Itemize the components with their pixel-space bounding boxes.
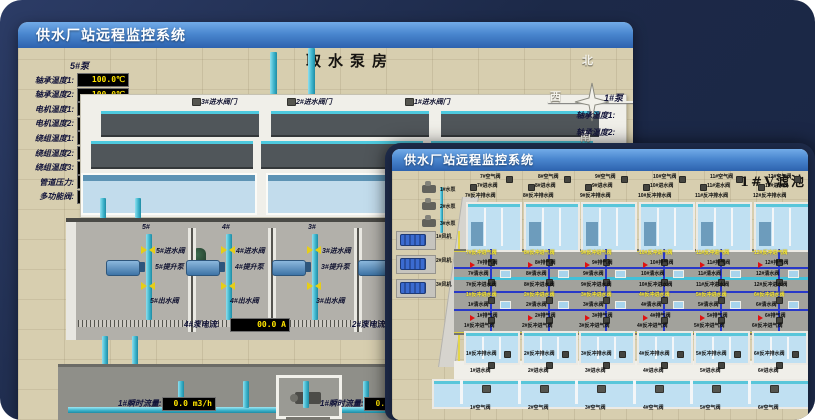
lift-pump-label: 3#提升泵	[321, 264, 350, 271]
backwash-drain-valve-label: 6#反冲排水阀	[754, 352, 785, 357]
cell-lane	[599, 208, 601, 246]
filter-cell	[694, 331, 750, 365]
backwash-drain-valve-label: 1#反冲排水阀	[466, 352, 497, 357]
filter-cell	[639, 202, 695, 252]
gallery-valve[interactable]	[546, 297, 553, 304]
cell-lane	[559, 208, 561, 246]
panel-label: 多功能阀:	[26, 191, 74, 202]
lift-pump[interactable]	[272, 260, 306, 276]
air-valve-label: 9#空气阀	[595, 175, 616, 180]
panel-label: 绕组温度3:	[26, 162, 74, 173]
clean-water-basin	[558, 301, 569, 309]
water-pump-label: 2#水泵	[440, 205, 456, 210]
blower[interactable]	[400, 234, 426, 246]
water-pump[interactable]	[422, 202, 436, 210]
bay-inlet-valve-label: 3#进水阀	[322, 248, 351, 255]
clean-water-valve-label: 6#清水阀	[756, 303, 777, 308]
filter-cell	[637, 331, 693, 365]
panel-label: 电机温度2:	[26, 118, 74, 129]
clean-water-valve-label: 5#清水阀	[698, 303, 719, 308]
connector-pipe	[102, 336, 108, 366]
filter-cell	[696, 202, 752, 252]
air-valve[interactable]	[597, 385, 606, 393]
air-valve-label: 12#空气阀	[768, 175, 791, 180]
gallery-valve[interactable]	[488, 297, 495, 304]
backwash-drain-valve[interactable]	[677, 351, 684, 358]
gallery-valve[interactable]	[603, 297, 610, 304]
backwash-air-valve-label: 4#反冲进气阀	[637, 324, 668, 329]
backwash-drain-valve-label: 12#反冲排水阀	[753, 194, 786, 199]
lift-pump[interactable]	[186, 260, 220, 276]
backwash-drain-valve-label: 4#反冲排水阀	[639, 352, 670, 357]
bay-divider	[268, 228, 276, 332]
backwash-drain-valve-label: 5#反冲排水阀	[696, 352, 727, 357]
cell-lane	[672, 337, 674, 359]
clean-water-basin	[615, 270, 626, 278]
bay-divider	[354, 228, 362, 332]
inlet-valve-label: 11#进水阀	[707, 184, 730, 189]
backwash-drain-valve[interactable]	[504, 351, 511, 358]
inlet-valve-label: 6#进水阀	[758, 369, 779, 374]
cell-streak	[586, 222, 598, 246]
bay-inlet-valve[interactable]	[221, 246, 235, 255]
channel-divider	[518, 380, 521, 404]
backwash-air-valve-label: 2#反冲进气阀	[522, 324, 553, 329]
backwash-water-valve-label: 2#反冲进水阀	[524, 293, 555, 298]
flow-meter-label: 1#瞬时流量:	[320, 400, 364, 408]
blower-label: 3#风机	[436, 283, 452, 288]
air-valve[interactable]	[679, 176, 686, 183]
air-valve[interactable]	[770, 385, 779, 393]
panel-row: 轴承温度1:100.0℃	[26, 74, 134, 86]
inlet-valve[interactable]	[700, 184, 707, 191]
filter-pool-scene: 1#V滤池 1#水泵2#水泵3#水泵1#风机2#风机3#风机7#空气阀7#进水阀…	[392, 171, 808, 420]
gallery-valve[interactable]	[718, 297, 725, 304]
backwash-water-valve-label: 3#反冲进水阀	[581, 293, 612, 298]
channel-divider	[460, 380, 463, 404]
bay-inlet-valve[interactable]	[307, 246, 321, 255]
hall-wall	[66, 222, 76, 340]
cell-streak	[471, 222, 483, 246]
channel-divider	[633, 380, 636, 404]
exhaust-valve-label: 3#排气阀	[592, 314, 613, 319]
backwash-air-valve-label: 10#反冲进气阀	[639, 251, 672, 256]
filter-cell	[466, 202, 522, 252]
clean-water-basin	[730, 270, 741, 278]
clean-water-valve-label: 1#清水阀	[468, 303, 489, 308]
lift-pump-label: 5#提升泵	[155, 264, 184, 271]
air-valve[interactable]	[621, 176, 628, 183]
inlet-valve[interactable]	[758, 184, 765, 191]
inlet-valve-label: 7#进水阀	[477, 184, 498, 189]
panel-value: 100.0℃	[77, 73, 129, 87]
panel-label: 绕组温度2:	[26, 148, 74, 159]
cell-streak	[529, 222, 541, 246]
filter-cell	[524, 202, 580, 252]
cell-lane	[731, 208, 733, 246]
backwash-air-valve-label: 5#反冲进气阀	[694, 324, 725, 329]
pump-current-value: 00.0 A	[230, 318, 290, 332]
air-valve[interactable]	[712, 385, 721, 393]
scada-canvas: 供水厂站远程监控系统 取水泵房 5#泵 轴承温度1:100.0℃轴承温度2:10…	[0, 0, 815, 420]
front-window-titlebar[interactable]: 供水厂站远程监控系统	[392, 149, 808, 171]
pump-panel-header: 5#泵	[70, 62, 89, 71]
clean-water-valve-label: 10#清水阀	[641, 272, 664, 277]
gallery-pipe-blue	[454, 267, 808, 269]
booster-station[interactable]	[276, 375, 342, 419]
gallery-valve[interactable]	[661, 297, 668, 304]
inlet-valve[interactable]	[470, 184, 477, 191]
air-valve[interactable]	[540, 385, 549, 393]
air-valve[interactable]	[794, 176, 801, 183]
intake-channel	[91, 141, 253, 169]
backwash-water-valve-label: 7#反冲进水阀	[466, 283, 497, 288]
backwash-water-valve-label: 9#反冲进水阀	[581, 283, 612, 288]
filter-cell	[464, 331, 520, 365]
cell-lane	[714, 208, 716, 246]
inlet-valve-label: 5#进水阀	[700, 369, 721, 374]
cell-lane	[616, 208, 618, 246]
inlet-valve-label: 3#进水阀	[585, 369, 606, 374]
compass-north-label: 北	[582, 56, 593, 67]
flow-meter-label: 1#瞬时流量:	[118, 400, 162, 408]
backwash-water-valve-label: 12#反冲进水阀	[754, 283, 787, 288]
air-valve[interactable]	[482, 385, 491, 393]
front-window: 供水厂站远程监控系统 1#V滤池 1#水泵2#水泵3#水泵1#风机2#风机3#风…	[392, 149, 808, 420]
inlet-valve-label: 2#进水阀	[528, 369, 549, 374]
inlet-valve-label: 9#进水阀	[592, 184, 613, 189]
bay-outlet-valve-label: 3#出水阀	[316, 298, 345, 305]
cell-lane	[484, 208, 486, 246]
clean-water-valve-label: 4#清水阀	[641, 303, 662, 308]
gallery-stub-pipe	[243, 381, 249, 408]
exhaust-valve-label: 5#排气阀	[707, 314, 728, 319]
clean-water-valve-label: 11#清水阀	[698, 272, 721, 277]
clean-water-valve-label: 12#清水阀	[756, 272, 779, 277]
inlet-valve[interactable]	[585, 184, 592, 191]
cell-lane	[772, 208, 774, 246]
backwash-drain-valve-label: 10#反冲排水阀	[638, 194, 671, 199]
intake-channel	[271, 111, 429, 137]
bay-number: 4#	[222, 224, 230, 231]
intake-channel	[101, 111, 259, 137]
bay-outlet-valve-label: 4#出水阀	[230, 298, 259, 305]
scene-title: 取水泵房	[306, 50, 394, 71]
flow-meter-value: 0.0 m3/h	[162, 397, 216, 411]
exhaust-valve-label: 7#排气阀	[477, 261, 498, 266]
backwash-water-valve-label: 10#反冲进水阀	[639, 283, 672, 288]
settling-channel	[81, 173, 257, 215]
back-window-title: 供水厂站远程监控系统	[36, 27, 186, 43]
backwash-drain-valve-label: 11#反冲排水阀	[695, 194, 728, 199]
backwash-drain-valve-label: 3#反冲排水阀	[581, 352, 612, 357]
backwash-air-valve-label: 12#反冲进气阀	[754, 251, 787, 256]
air-valve-label: 7#空气阀	[480, 175, 501, 180]
bay-inlet-valve[interactable]	[141, 246, 155, 255]
water-pump-label: 3#水泵	[440, 222, 456, 227]
compass-west-label: 西	[550, 92, 561, 103]
backwash-air-valve-label: 7#反冲进气阀	[466, 251, 497, 256]
backwash-water-valve-label: 8#反冲进水阀	[524, 283, 555, 288]
air-valve-label: 6#空气阀	[758, 406, 779, 411]
connector-pipe	[132, 336, 138, 366]
air-valve-label: 10#空气阀	[653, 175, 676, 180]
air-valve[interactable]	[736, 176, 743, 183]
inlet-valve[interactable]	[643, 184, 650, 191]
backwash-drain-valve[interactable]	[619, 351, 626, 358]
exhaust-valve-label: 1#排气阀	[477, 314, 498, 319]
clean-water-basin	[615, 301, 626, 309]
filter-cell	[522, 331, 578, 365]
filter-cell	[752, 331, 808, 365]
pump-current-label: 4#泵电流:	[184, 321, 220, 329]
cell-lane	[499, 337, 501, 359]
bay-number: 5#	[142, 224, 150, 231]
clean-water-valve-label: 2#清水阀	[526, 303, 547, 308]
exhaust-valve-label: 4#排气阀	[650, 314, 671, 319]
clean-water-basin	[673, 301, 684, 309]
filter-cell	[754, 202, 808, 252]
right-panel-label: 轴承温度1:	[576, 112, 615, 120]
bay-inlet-valve-label: 5#进水阀	[156, 248, 185, 255]
air-valve-label: 11#空气阀	[710, 175, 733, 180]
water-pump[interactable]	[422, 219, 436, 227]
front-window-title: 供水厂站远程监控系统	[404, 153, 534, 167]
riser-pipe	[308, 48, 315, 100]
filter-cell	[581, 202, 637, 252]
exhaust-valve-label: 6#排气阀	[765, 314, 786, 319]
bay-outlet-valve[interactable]	[221, 282, 235, 291]
backwash-water-valve-label: 4#反冲进水阀	[639, 293, 670, 298]
clean-water-basin	[500, 301, 511, 309]
backwash-water-valve-label: 6#反冲进水阀	[754, 293, 785, 298]
cell-lane	[729, 337, 731, 359]
backwash-drain-valve-label: 2#反冲排水阀	[524, 352, 555, 357]
clean-water-valve-label: 3#清水阀	[583, 303, 604, 308]
cell-lane	[787, 337, 789, 359]
panel-label: 电机温度1:	[26, 104, 74, 115]
inlet-valve[interactable]	[528, 184, 535, 191]
gallery-pipe-blue	[454, 309, 808, 311]
backwash-air-valve-label: 3#反冲进气阀	[579, 324, 610, 329]
water-pump[interactable]	[422, 185, 436, 193]
air-valve-label: 3#空气阀	[585, 406, 606, 411]
air-valve[interactable]	[564, 176, 571, 183]
backwash-air-valve-label: 6#反冲进气阀	[752, 324, 783, 329]
clean-water-basin	[788, 301, 799, 309]
backwash-drain-valve-label: 8#反冲排水阀	[523, 194, 554, 199]
lift-pump-label: 4#提升泵	[235, 264, 264, 271]
cell-lane	[557, 337, 559, 359]
exhaust-valve-label: 11#排气阀	[707, 261, 730, 266]
panel-label: 管道压力:	[26, 177, 74, 188]
air-valve-label: 5#空气阀	[700, 406, 721, 411]
backwash-drain-valve[interactable]	[562, 351, 569, 358]
cell-lane	[501, 208, 503, 246]
blower[interactable]	[400, 258, 426, 270]
air-valve-label: 1#空气阀	[470, 406, 491, 411]
riser-pipe	[270, 52, 277, 100]
clean-water-basin	[558, 270, 569, 278]
inlet-valve-label: 1#进水阀	[470, 369, 491, 374]
bay-outlet-valve[interactable]	[307, 282, 321, 291]
clean-water-basin	[730, 301, 741, 309]
backwash-water-valve-label: 11#反冲进水阀	[696, 283, 729, 288]
clean-water-valve-label: 7#清水阀	[468, 272, 489, 277]
backwash-water-valve-label: 1#反冲进水阀	[466, 293, 497, 298]
cell-lane	[542, 208, 544, 246]
backwash-air-valve-label: 1#反冲进气阀	[464, 324, 495, 329]
panel-label: 绕组温度1:	[26, 133, 74, 144]
channel-divider	[575, 380, 578, 404]
cell-streak	[644, 222, 656, 246]
right-panel-header: 1#泵	[604, 94, 623, 103]
cell-lane	[674, 208, 676, 246]
pump-current-label: 2#泵电流:	[352, 321, 388, 329]
blower-label: 1#风机	[436, 235, 452, 240]
clean-water-valve-label: 8#清水阀	[526, 272, 547, 277]
air-valve-label: 2#空气阀	[528, 406, 549, 411]
inlet-valve-label: 8#进水阀	[535, 184, 556, 189]
bay-number: 3#	[308, 224, 316, 231]
exhaust-valve-label: 10#排气阀	[650, 261, 673, 266]
inlet-valve-label: 10#进水阀	[650, 184, 673, 189]
cell-streak	[701, 222, 713, 246]
cell-lane	[614, 337, 616, 359]
panel-label: 轴承温度2:	[26, 89, 74, 100]
air-valve-label: 8#空气阀	[538, 175, 559, 180]
channel-divider	[690, 380, 693, 404]
cell-lane	[657, 208, 659, 246]
bay-inlet-valve-label: 4#进水阀	[236, 248, 265, 255]
backwash-air-valve-label: 8#反冲进气阀	[524, 251, 555, 256]
blower[interactable]	[400, 282, 426, 294]
channel-divider	[748, 380, 751, 404]
exhaust-valve-label: 2#排气阀	[535, 314, 556, 319]
panel-label: 轴承温度1:	[26, 75, 74, 86]
backwash-drain-valve-label: 7#反冲排水阀	[465, 194, 496, 199]
lift-pump[interactable]	[106, 260, 140, 276]
cell-lane	[789, 208, 791, 246]
water-pump-label: 1#水泵	[440, 188, 456, 193]
back-window-titlebar[interactable]: 供水厂站远程监控系统	[18, 22, 633, 48]
backwash-water-valve-label: 5#反冲进水阀	[696, 293, 727, 298]
inlet-valve-label: 12#进水阀	[765, 184, 788, 189]
blower-label: 2#风机	[436, 259, 452, 264]
clean-water-basin	[500, 270, 511, 278]
exhaust-valve-label: 12#排气阀	[765, 261, 788, 266]
bay-outlet-valve[interactable]	[141, 282, 155, 291]
gallery-stub-pipe	[303, 381, 309, 408]
backwash-air-valve-label: 11#反冲进气阀	[696, 251, 729, 256]
bay-divider	[188, 228, 196, 332]
front-window-frame: 供水厂站远程监控系统 1#V滤池 1#水泵2#水泵3#水泵1#风机2#风机3#风…	[385, 143, 815, 420]
filter-cell	[579, 331, 635, 365]
backwash-air-valve-label: 9#反冲进气阀	[581, 251, 612, 256]
right-panel-label: 轴承温度2:	[576, 129, 615, 137]
cell-streak	[759, 222, 771, 246]
gallery-valve[interactable]	[776, 297, 783, 304]
backwash-drain-valve-label: 9#反冲排水阀	[580, 194, 611, 199]
air-valve[interactable]	[506, 176, 513, 183]
air-valve-label: 4#空气阀	[643, 406, 664, 411]
backwash-drain-valve[interactable]	[792, 351, 799, 358]
clean-water-basin	[788, 270, 799, 278]
clean-water-valve-label: 9#清水阀	[583, 272, 604, 277]
exhaust-valve-label: 8#排气阀	[535, 261, 556, 266]
exhaust-valve-label: 9#排气阀	[592, 261, 613, 266]
bay-outlet-valve-label: 5#出水阀	[150, 298, 179, 305]
inlet-valve-label: 4#进水阀	[643, 369, 664, 374]
air-valve[interactable]	[655, 385, 664, 393]
clean-water-basin	[673, 270, 684, 278]
backwash-drain-valve[interactable]	[734, 351, 741, 358]
